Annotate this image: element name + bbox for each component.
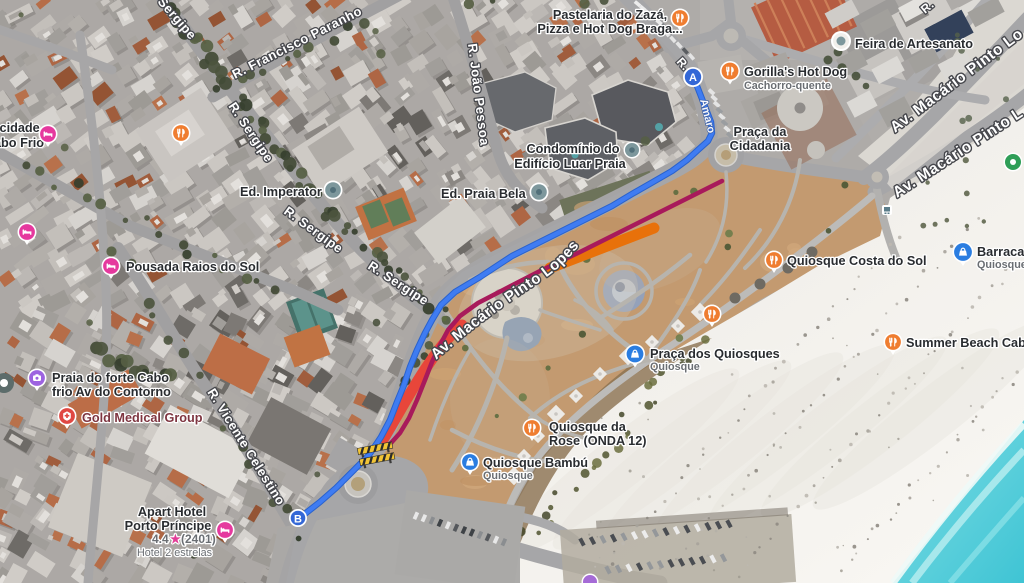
svg-text:Quiosque: Quiosque [483, 470, 533, 482]
svg-text:Cidadania: Cidadania [730, 139, 792, 153]
svg-text:Edifício Luar Praia: Edifício Luar Praia [514, 157, 626, 171]
svg-text:Condomínio do: Condomínio do [526, 142, 619, 156]
svg-text:Quiosque Costa do Sol: Quiosque Costa do Sol [787, 254, 927, 268]
svg-text:Apart Hotel: Apart Hotel [138, 505, 206, 519]
svg-text:Quiosque: Quiosque [650, 361, 700, 373]
svg-text:★: ★ [170, 532, 181, 546]
svg-text:Praça dos Quiosques: Praça dos Quiosques [650, 347, 780, 361]
svg-text:Ed. Praia Bela: Ed. Praia Bela [441, 187, 527, 201]
svg-text:icidade: icidade [0, 121, 40, 135]
svg-text:Pizza e Hot Dog Braga...: Pizza e Hot Dog Braga... [537, 22, 682, 36]
svg-text:Praia do forte Cabo: Praia do forte Cabo [52, 371, 169, 385]
svg-text:frio Av do Contorno: frio Av do Contorno [52, 385, 171, 399]
svg-text:Porto Príncipe: Porto Príncipe [125, 519, 212, 533]
svg-text:Quiosque: Quiosque [977, 259, 1024, 271]
svg-text:Barraca: Barraca [977, 245, 1024, 259]
svg-text:A: A [689, 72, 697, 84]
svg-text:abo Frio: abo Frio [0, 136, 44, 150]
svg-text:4.4: 4.4 [152, 532, 169, 546]
svg-text:B: B [294, 514, 302, 526]
svg-text:Praça da: Praça da [734, 125, 788, 139]
svg-text:Hotel 2 estrelas: Hotel 2 estrelas [137, 547, 213, 559]
svg-text:Quiosque Bambú: Quiosque Bambú [483, 456, 588, 470]
svg-text:Cachorro-quente: Cachorro-quente [744, 80, 831, 92]
svg-text:(2401): (2401) [181, 532, 216, 546]
svg-text:Feira de Artesanato: Feira de Artesanato [855, 37, 973, 51]
svg-text:Rose (ONDA 12): Rose (ONDA 12) [549, 434, 647, 448]
svg-text:Pousada Raios do Sol: Pousada Raios do Sol [126, 260, 259, 274]
svg-text:Pastelaria do Zazá,: Pastelaria do Zazá, [553, 8, 667, 22]
svg-text:Gorilla's Hot Dog: Gorilla's Hot Dog [744, 65, 847, 79]
svg-text:Quiosque da: Quiosque da [549, 420, 627, 434]
svg-text:Gold Medical Group: Gold Medical Group [82, 411, 203, 425]
svg-text:Summer Beach Cab: Summer Beach Cab [906, 336, 1024, 350]
svg-text:Ed. Imperator: Ed. Imperator [240, 185, 322, 199]
